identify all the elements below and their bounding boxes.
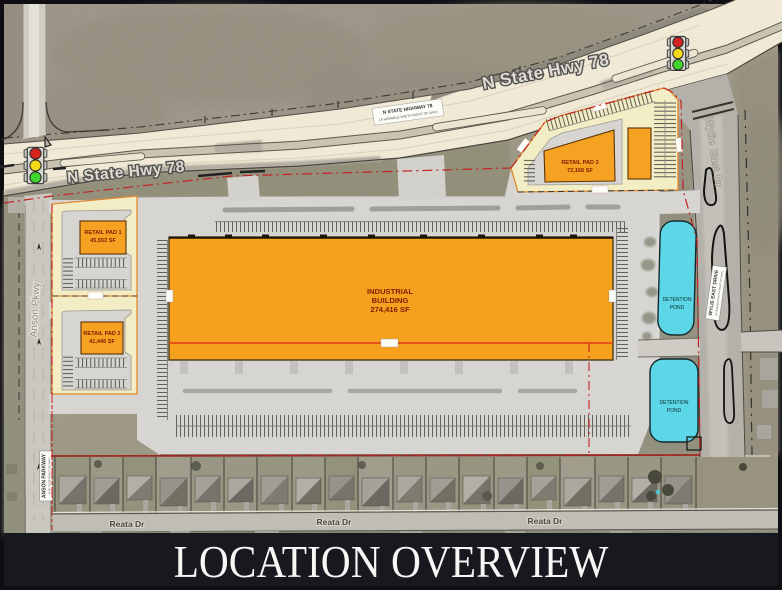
svg-text:RETAIL PAD 3: RETAIL PAD 3	[561, 160, 598, 166]
svg-text:BUILDING: BUILDING	[372, 296, 409, 305]
svg-text:45,552 SF: 45,552 SF	[90, 238, 116, 244]
svg-text:Reata Dr: Reata Dr	[317, 517, 353, 527]
svg-text:72,166 SF: 72,166 SF	[567, 168, 593, 174]
svg-text:POND: POND	[667, 408, 682, 414]
svg-text:RETAIL PAD 2: RETAIL PAD 2	[83, 331, 120, 337]
svg-text:INDUSTRIAL: INDUSTRIAL	[367, 287, 413, 296]
svg-text:POND: POND	[670, 305, 685, 311]
svg-text:DETENTION: DETENTION	[660, 400, 689, 406]
svg-text:DETENTION: DETENTION	[663, 297, 692, 303]
svg-text:RETAIL PAD 1: RETAIL PAD 1	[84, 230, 121, 236]
svg-text:Reata Dr: Reata Dr	[110, 519, 146, 529]
svg-text:41,446 SF: 41,446 SF	[89, 339, 115, 345]
svg-text:(A 90' WIDE RIGHT OF WAY): (A 90' WIDE RIGHT OF WAY)	[48, 457, 52, 494]
svg-text:Reata Dr: Reata Dr	[528, 516, 564, 526]
svg-text:274,416 SF: 274,416 SF	[370, 305, 410, 314]
